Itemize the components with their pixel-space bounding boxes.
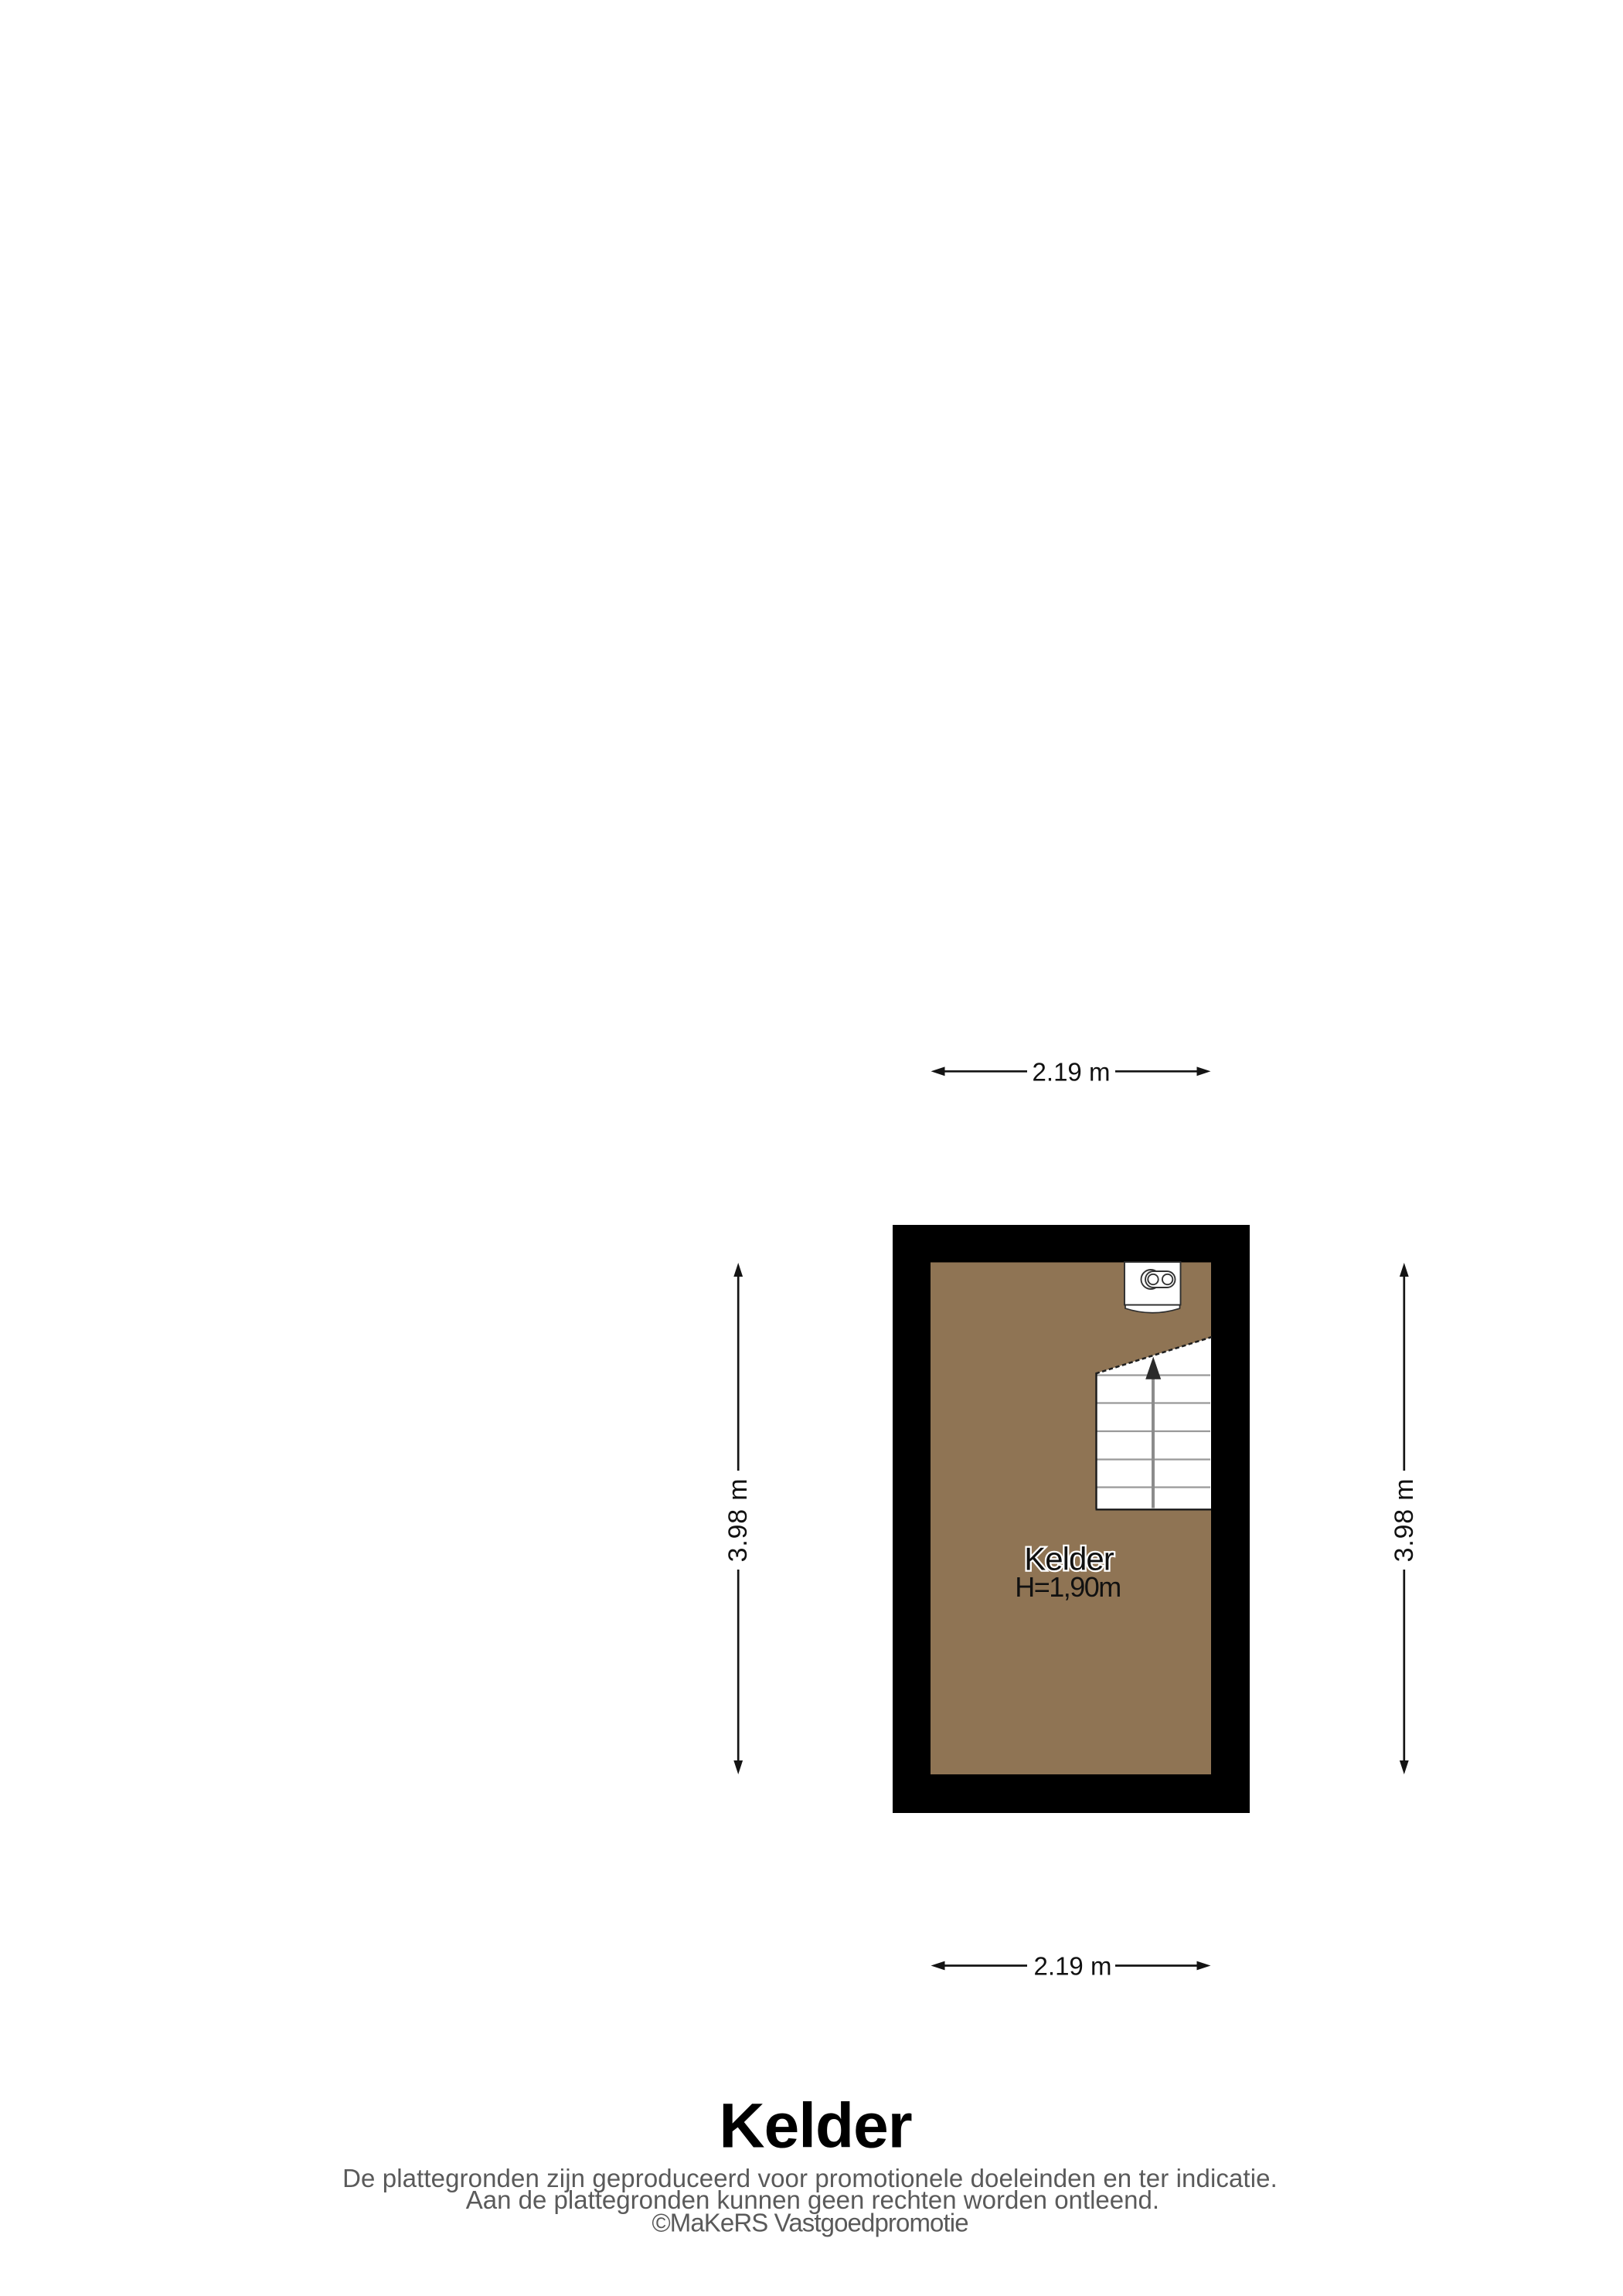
svg-text:3.98 m: 3.98 m bbox=[1390, 1478, 1419, 1563]
svg-text:Kelder: Kelder bbox=[719, 2091, 911, 2162]
svg-text:©MaKeRS Vastgoedpromotie: ©MaKeRS Vastgoedpromotie bbox=[652, 2209, 968, 2237]
svg-text:2.19 m: 2.19 m bbox=[1034, 1952, 1112, 1981]
svg-text:2.19 m: 2.19 m bbox=[1033, 1058, 1111, 1087]
svg-text:3.98 m: 3.98 m bbox=[723, 1478, 753, 1563]
svg-text:H=1,90m: H=1,90m bbox=[1015, 1571, 1121, 1603]
